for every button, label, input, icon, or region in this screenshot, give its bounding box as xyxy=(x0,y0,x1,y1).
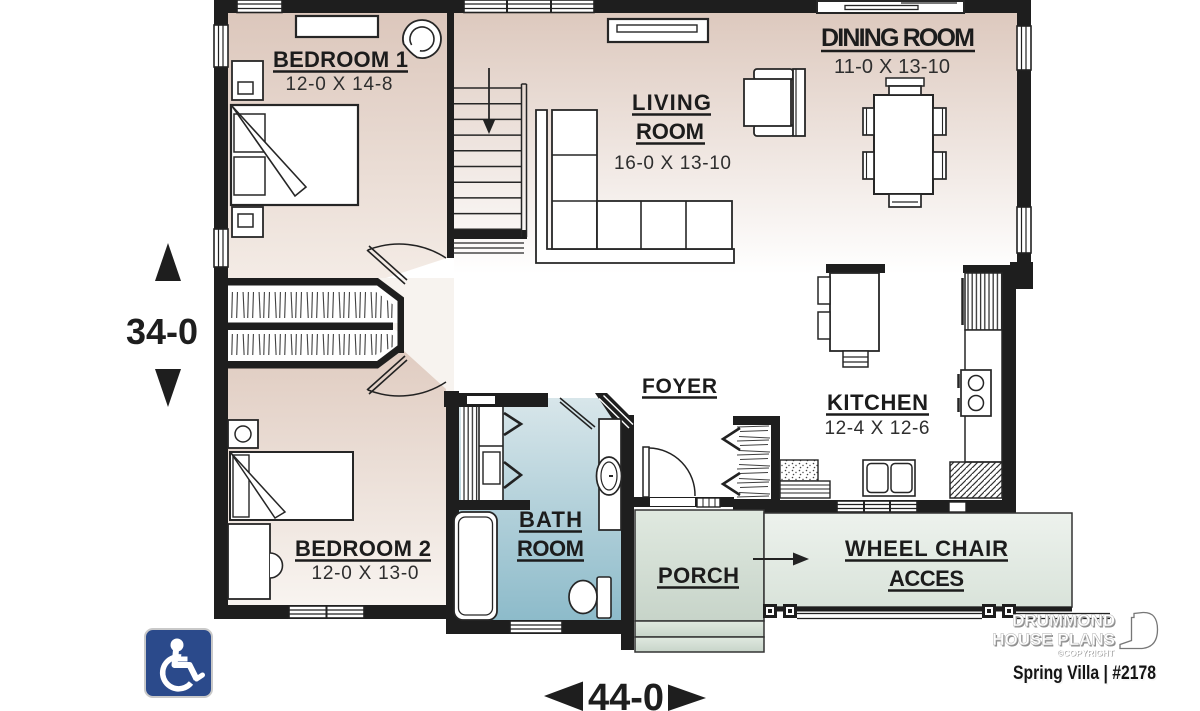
svg-text:12-0 X 14-8: 12-0 X 14-8 xyxy=(286,74,393,95)
svg-text:BATH: BATH xyxy=(519,507,582,532)
svg-text:KITCHEN: KITCHEN xyxy=(827,390,928,415)
svg-text:FOYER: FOYER xyxy=(642,375,717,398)
svg-text:BEDROOM 2: BEDROOM 2 xyxy=(295,536,431,561)
svg-text:WHEEL CHAIR: WHEEL CHAIR xyxy=(845,536,1008,561)
svg-text:ROOM: ROOM xyxy=(517,536,584,561)
svg-text:11-0 X 13-10: 11-0 X 13-10 xyxy=(834,56,950,78)
svg-text:12-4 X 12-6: 12-4 X 12-6 xyxy=(825,418,930,439)
svg-text:44-0: 44-0 xyxy=(588,677,664,711)
svg-text:DRUMMOND: DRUMMOND xyxy=(1012,611,1115,630)
svg-text:ROOM: ROOM xyxy=(636,119,704,144)
svg-text:©COPYRIGHT: ©COPYRIGHT xyxy=(1057,648,1115,658)
svg-text:Spring Villa | #2178: Spring Villa | #2178 xyxy=(1013,663,1156,684)
svg-text:16-0 X 13-10: 16-0 X 13-10 xyxy=(614,153,731,174)
svg-text:BEDROOM 1: BEDROOM 1 xyxy=(273,47,408,72)
svg-text:ACCES: ACCES xyxy=(889,566,964,591)
svg-text:DINING ROOM: DINING ROOM xyxy=(821,24,975,52)
svg-text:LIVING: LIVING xyxy=(632,90,711,115)
svg-text:HOUSE PLANS: HOUSE PLANS xyxy=(992,630,1115,649)
svg-text:PORCH: PORCH xyxy=(658,563,739,588)
svg-text:34-0: 34-0 xyxy=(126,311,198,352)
svg-text:12-0 X 13-0: 12-0 X 13-0 xyxy=(312,563,419,584)
